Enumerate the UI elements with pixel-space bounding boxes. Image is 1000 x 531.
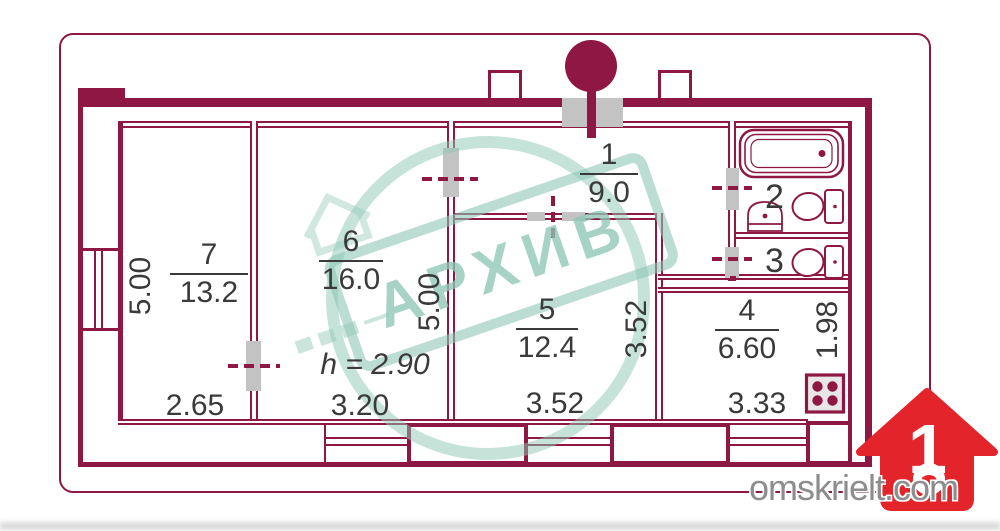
door-hinge-mark — [730, 276, 736, 281]
door-jamb-toilet — [725, 247, 739, 278]
bottom-wall-pier-2 — [610, 423, 730, 465]
exterior-wall-top — [78, 98, 872, 107]
door-dash-toilet — [712, 257, 752, 261]
site-name: omskrielt.com — [749, 467, 958, 509]
room1-number: 1 — [580, 140, 638, 175]
wall-rooms-top — [118, 121, 852, 128]
dim-kitchen-depth: 1.98 — [811, 285, 845, 375]
scan-artifact-band — [0, 522, 1000, 530]
top-wall-pilaster-right — [658, 70, 692, 98]
exterior-wall-top-left-block — [78, 88, 125, 107]
room4-area: 6.60 — [715, 331, 779, 365]
exterior-wall-left — [78, 88, 83, 467]
door-jamb-room6 — [443, 148, 459, 197]
room5-label: 5 12.4 — [516, 295, 578, 363]
door-dash-bathroom — [712, 186, 752, 190]
room7-label: 7 13.2 — [170, 240, 248, 308]
room5-area: 12.4 — [516, 330, 578, 364]
room7-area: 13.2 — [170, 275, 248, 309]
door-jamb-room5-right — [562, 212, 585, 221]
door-dash-room7-room6 — [228, 364, 280, 368]
bottom-wall-pier-1 — [407, 423, 528, 465]
room1-area: 9.0 — [580, 175, 638, 209]
dim-ceiling-height: h = 2.90 — [295, 348, 455, 382]
exterior-wall-right — [865, 98, 872, 467]
dim-room5-depth: 5.00 — [413, 257, 447, 347]
door-jamb-room5-left — [527, 212, 545, 221]
dim-room7-depth: 5.00 — [124, 241, 158, 331]
room6-area: 16.0 — [319, 262, 383, 296]
wall-room5-right — [655, 213, 663, 425]
entrance-door-knob-icon — [565, 40, 617, 92]
door-dash-room6 — [422, 177, 478, 181]
wall-room7-left — [118, 121, 123, 425]
room7-number: 7 — [170, 240, 248, 275]
window-room7 — [94, 251, 103, 328]
top-wall-pilaster-left — [488, 70, 522, 98]
window-room6-left-edge — [324, 425, 326, 463]
window-kitchen — [730, 437, 806, 446]
floorplan-canvas: АРХИВ 1 9.0 2 3 4 6.60 5 12.4 6 16.0 7 1… — [0, 0, 1000, 531]
window-room6 — [325, 437, 407, 446]
room4-number: 4 — [715, 296, 779, 331]
dim-kitchen-width: 3.33 — [712, 387, 802, 421]
wall-inner-right — [848, 121, 852, 425]
window-room7-bottom-cap — [83, 328, 118, 331]
room6-number: 6 — [319, 227, 383, 262]
room6-label: 6 16.0 — [319, 227, 383, 295]
dim-room7-width: 2.65 — [150, 389, 240, 423]
wall-bath-toilet-divider — [736, 232, 848, 239]
room1-label: 1 9.0 — [580, 140, 638, 208]
dim-room5-right-depth: 3.52 — [620, 284, 654, 374]
room5-number: 5 — [516, 295, 578, 330]
room3-number: 3 — [765, 242, 784, 281]
dim-room5-width: 3.52 — [510, 387, 600, 421]
wall-toilet-bottom — [658, 274, 848, 280]
room2-number: 2 — [765, 178, 784, 217]
room4-label: 4 6.60 — [715, 296, 779, 364]
dim-room6-width: 3.20 — [315, 389, 405, 423]
wall-hall-room5 — [455, 213, 663, 220]
bottom-wall-pier-3 — [806, 421, 852, 465]
door-dash-room5 — [551, 196, 555, 240]
window-room5 — [528, 437, 610, 446]
